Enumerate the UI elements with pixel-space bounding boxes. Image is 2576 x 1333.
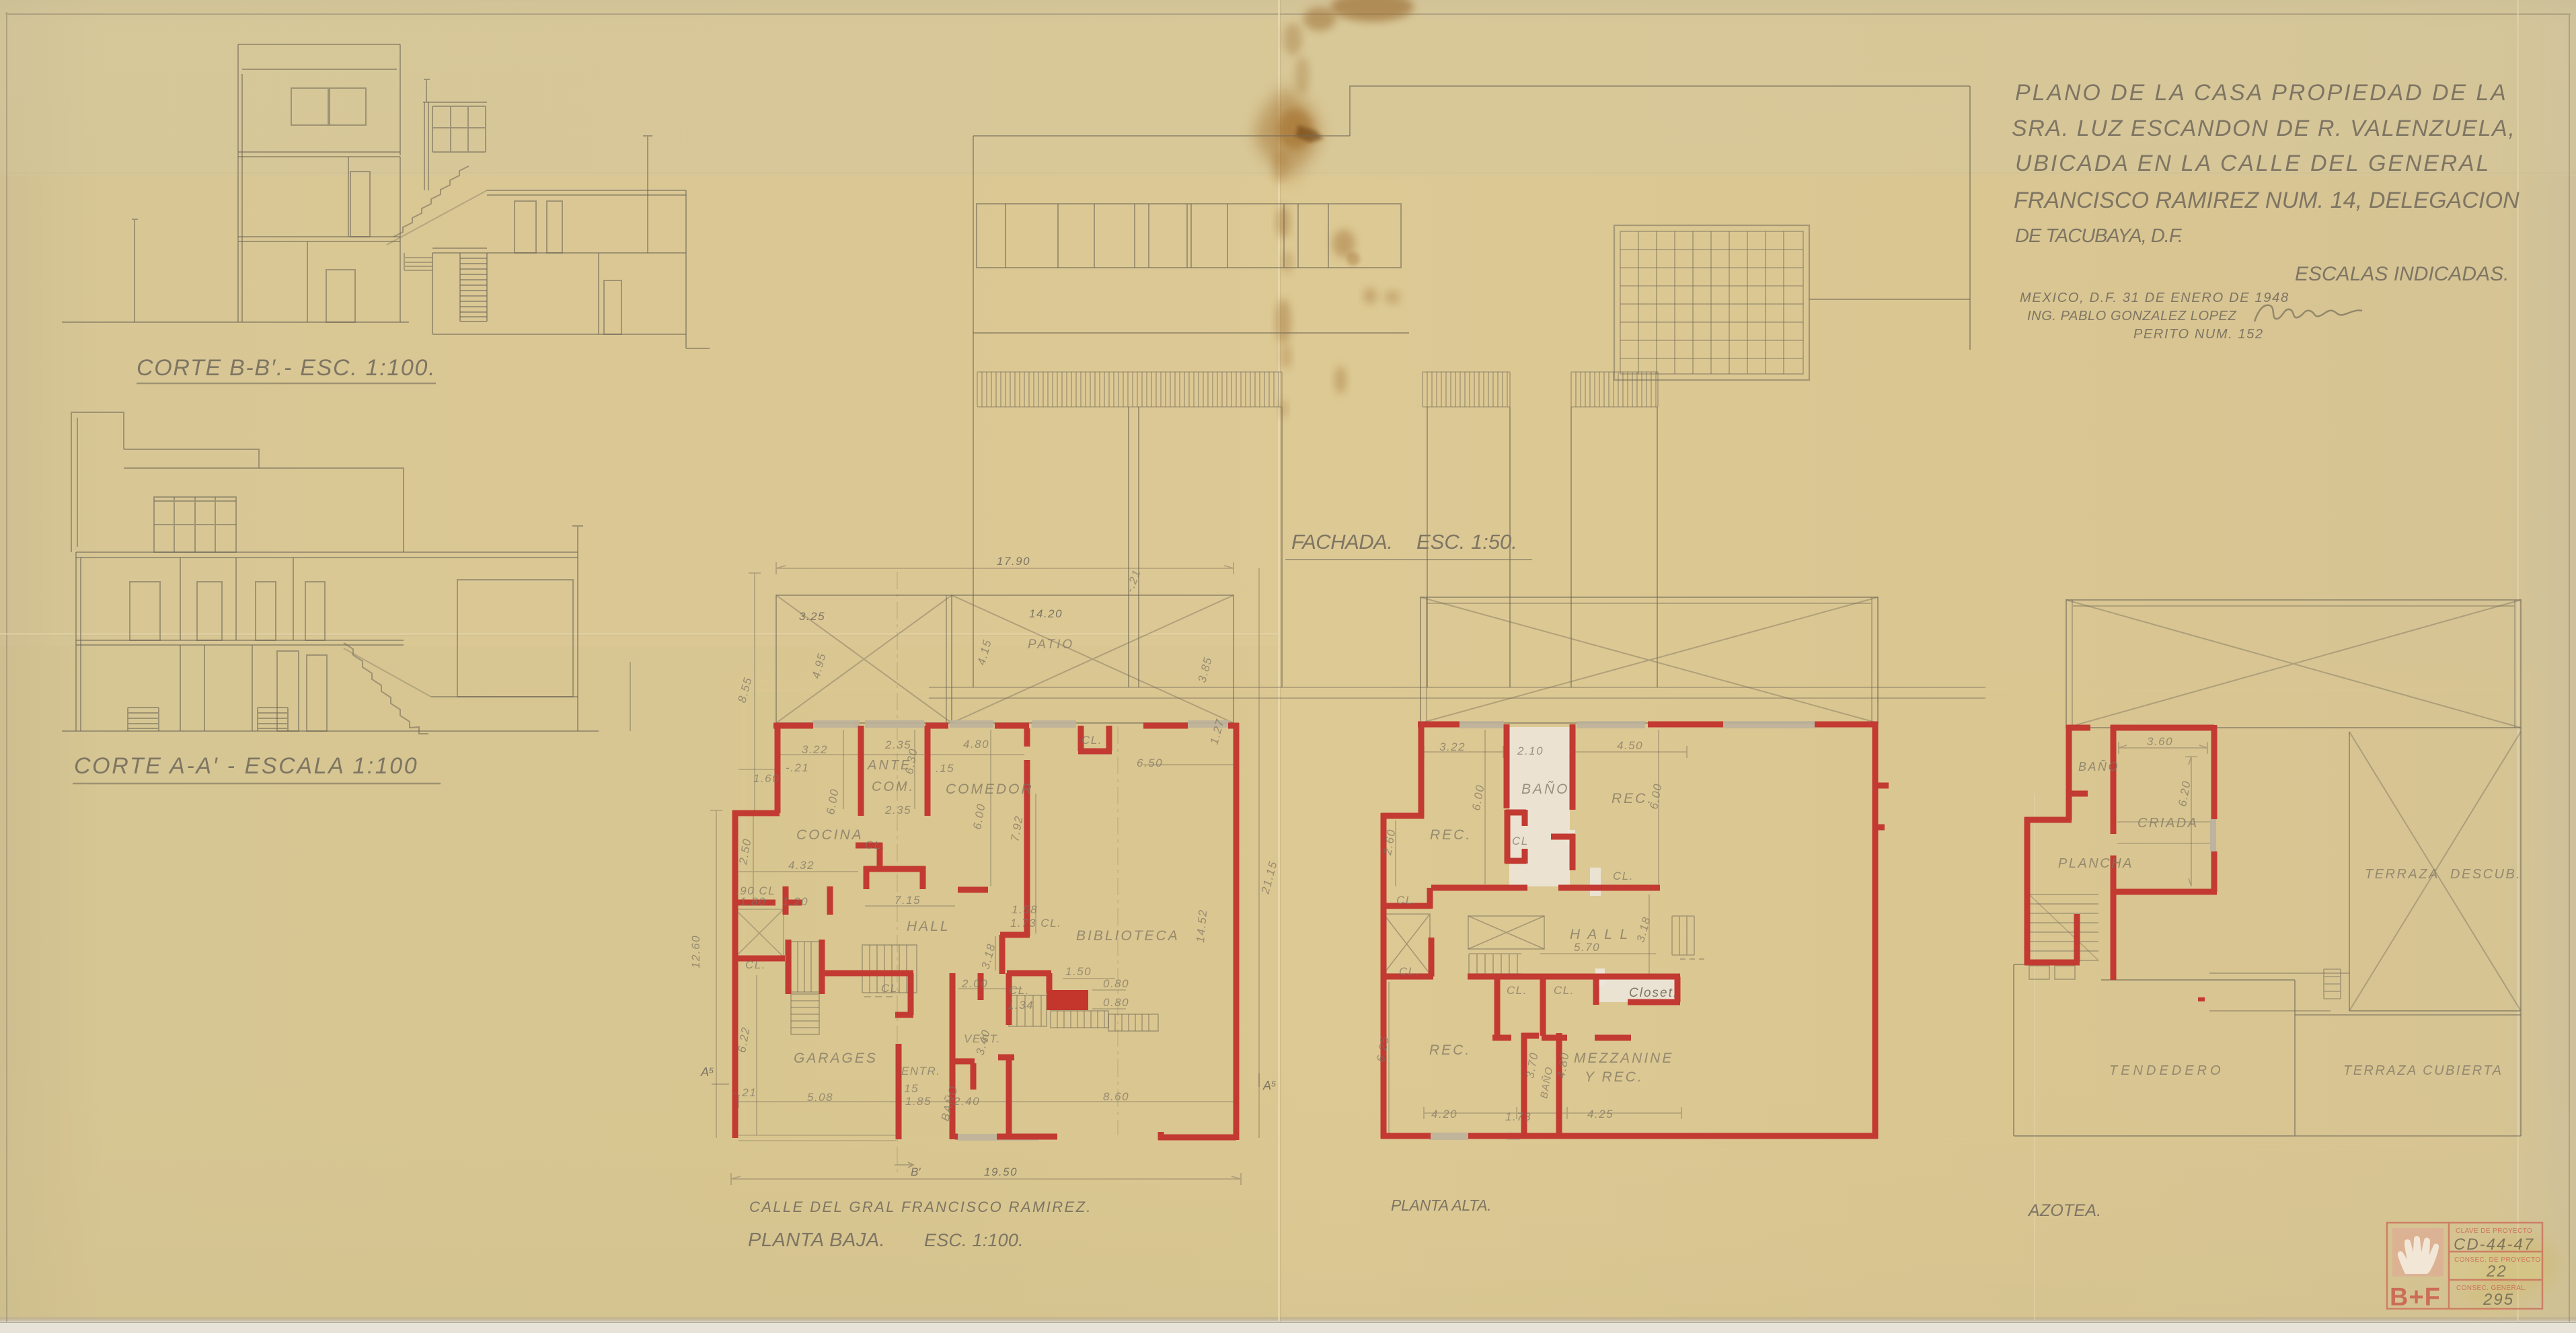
svg-text:ENTR.: ENTR.	[901, 1065, 941, 1077]
svg-text:2.10: 2.10	[1517, 745, 1544, 757]
svg-text:CRIADA: CRIADA	[2137, 816, 2199, 831]
svg-text:1.34: 1.34	[1008, 999, 1034, 1012]
svg-text:CL.: CL.	[745, 958, 766, 971]
svg-text:CD-44-47: CD-44-47	[2454, 1235, 2534, 1254]
svg-text:B′: B′	[911, 1166, 921, 1178]
svg-text:GARAGES: GARAGES	[794, 1051, 878, 1066]
svg-text:1.73: 1.73	[1505, 1110, 1531, 1123]
svg-text:12.60: 12.60	[689, 935, 702, 968]
svg-text:BAÑO: BAÑO	[1521, 781, 1570, 797]
svg-text:CL: CL	[1512, 835, 1529, 847]
svg-text:ANTE: ANTE	[867, 758, 911, 773]
svg-text:3.22: 3.22	[1439, 740, 1466, 753]
svg-text:PLANTA ALTA.: PLANTA ALTA.	[1391, 1196, 1491, 1214]
svg-text:1.58: 1.58	[1012, 903, 1038, 916]
svg-text:PLANCHA: PLANCHA	[2058, 856, 2133, 871]
svg-text:A⁵: A⁵	[700, 1065, 714, 1079]
svg-text:17.90: 17.90	[997, 555, 1030, 568]
svg-text:COM.: COM.	[872, 779, 915, 794]
svg-text:BIBLIOTECA: BIBLIOTECA	[1076, 928, 1180, 944]
svg-text:UBICADA EN LA CALLE DEL GENERA: UBICADA EN LA CALLE DEL GENERAL	[2015, 151, 2491, 176]
svg-text:CLAVE DE PROYECTO: CLAVE DE PROYECTO	[2456, 1227, 2532, 1235]
svg-text:295: 295	[2483, 1291, 2514, 1309]
svg-text:0.80: 0.80	[1103, 977, 1129, 990]
svg-text:7.15: 7.15	[895, 894, 921, 907]
svg-text:8.60: 8.60	[1103, 1090, 1129, 1103]
svg-text:2.00: 2.00	[961, 977, 988, 990]
svg-text:4.32: 4.32	[788, 859, 815, 872]
svg-text:PLANTA BAJA.: PLANTA BAJA.	[748, 1229, 885, 1251]
svg-text:B+F: B+F	[2390, 1283, 2441, 1311]
svg-text:Y REC.: Y REC.	[1585, 1069, 1644, 1085]
svg-text:MEZZANINE: MEZZANINE	[1574, 1051, 1673, 1066]
svg-text:4.20: 4.20	[1431, 1108, 1457, 1120]
svg-text:MEXICO, D.F. 31 DE ENERO DE 19: MEXICO, D.F. 31 DE ENERO DE 1948	[2020, 291, 2289, 305]
svg-text:CL.: CL.	[1399, 965, 1420, 978]
svg-text:A⁵: A⁵	[1262, 1079, 1277, 1092]
svg-text:CL.: CL.	[1082, 734, 1102, 747]
svg-text:1.20: 1.20	[782, 895, 808, 908]
svg-text:CL.: CL.	[1009, 984, 1030, 997]
svg-text:.15: .15	[900, 1082, 919, 1095]
svg-text:CORTE B-B′.- ESC. 1:100.: CORTE B-B′.- ESC. 1:100.	[137, 355, 436, 381]
svg-text:HALL: HALL	[907, 919, 950, 934]
svg-text:CL.: CL.	[1507, 984, 1527, 997]
svg-text:1.73 CL.: 1.73 CL.	[1010, 917, 1061, 929]
svg-text:3.60: 3.60	[2147, 735, 2173, 748]
svg-text:PLANO DE LA CASA PROPIEDAD DE: PLANO DE LA CASA PROPIEDAD DE LA	[2015, 80, 2508, 106]
svg-text:4.25: 4.25	[1587, 1108, 1614, 1120]
svg-text:2.35: 2.35	[884, 804, 911, 816]
svg-text:Closet.: Closet.	[1629, 986, 1678, 1000]
svg-text:TENDEDERO: TENDEDERO	[2109, 1063, 2224, 1078]
svg-text:SRA. LUZ ESCANDON DE R. VALENZ: SRA. LUZ ESCANDON DE R. VALENZUELA,	[2012, 116, 2515, 141]
svg-text:3.22: 3.22	[802, 743, 828, 756]
svg-text:-.21: -.21	[733, 1086, 757, 1099]
svg-text:ESC. 1:50.: ESC. 1:50.	[1416, 530, 1517, 554]
svg-text:BAÑO: BAÑO	[2078, 759, 2119, 773]
svg-text:H A L L: H A L L	[1570, 927, 1630, 942]
svg-text:DE TACUBAYA, D.F.: DE TACUBAYA, D.F.	[2015, 225, 2183, 247]
svg-text:CL.: CL.	[881, 982, 902, 995]
svg-text:CALLE DEL GRAL FRANCISCO RAMIR: CALLE DEL GRAL FRANCISCO RAMIREZ.	[749, 1198, 1092, 1215]
svg-text:CL.: CL.	[1554, 984, 1575, 997]
svg-text:COCINA: COCINA	[796, 827, 864, 843]
svg-text:FACHADA.: FACHADA.	[1291, 530, 1392, 554]
svg-text:3.25: 3.25	[799, 610, 825, 623]
svg-text:4.80: 4.80	[963, 738, 989, 751]
svg-text:CORTE A-A′ - ESCALA 1:100: CORTE A-A′ - ESCALA 1:100	[74, 753, 418, 779]
svg-text:CL.: CL.	[1613, 870, 1634, 882]
svg-text:22: 22	[2486, 1262, 2507, 1281]
svg-text:5.70: 5.70	[1574, 941, 1600, 954]
svg-text:.15: .15	[936, 762, 954, 775]
svg-text:TERRAZA DESCUB.: TERRAZA DESCUB.	[2365, 867, 2522, 882]
svg-text:6.50: 6.50	[1137, 757, 1163, 769]
svg-text:ESCALAS INDICADAS.: ESCALAS INDICADAS.	[2295, 263, 2509, 285]
svg-text:ING. PABLO GONZALEZ LOPEZ: ING. PABLO GONZALEZ LOPEZ	[2027, 309, 2237, 323]
svg-text:0.80: 0.80	[1103, 996, 1129, 1009]
svg-text:PATIO: PATIO	[1028, 638, 1074, 652]
svg-text:REC.: REC.	[1429, 1042, 1471, 1058]
svg-text:REC.: REC.	[1612, 791, 1653, 806]
svg-text:REC.: REC.	[1430, 827, 1472, 843]
svg-text:CL.: CL.	[1396, 894, 1417, 907]
svg-text:5.08: 5.08	[807, 1091, 833, 1104]
svg-text:14.20: 14.20	[1029, 607, 1063, 620]
svg-text:1.60: 1.60	[753, 772, 780, 785]
svg-text:1.50: 1.50	[1065, 965, 1092, 978]
svg-text:-.21: -.21	[786, 761, 809, 774]
svg-text:4.50: 4.50	[1617, 739, 1643, 752]
svg-text:FRANCISCO RAMIREZ NUM. 14, DEL: FRANCISCO RAMIREZ NUM. 14, DELEGACION	[2014, 188, 2520, 213]
svg-text:ESC. 1:100.: ESC. 1:100.	[924, 1230, 1024, 1250]
svg-text:AZOTEA.: AZOTEA.	[2027, 1201, 2101, 1220]
svg-text:1.80: 1.80	[740, 895, 766, 908]
svg-text:TERRAZA CUBIERTA: TERRAZA CUBIERTA	[2343, 1063, 2503, 1078]
svg-text:COMEDOR: COMEDOR	[946, 782, 1034, 797]
svg-text:CL.: CL.	[865, 839, 886, 851]
svg-text:1.85: 1.85	[905, 1095, 932, 1108]
svg-text:19.50: 19.50	[984, 1166, 1018, 1178]
svg-text:PERITO NUM. 152: PERITO NUM. 152	[2133, 327, 2264, 342]
